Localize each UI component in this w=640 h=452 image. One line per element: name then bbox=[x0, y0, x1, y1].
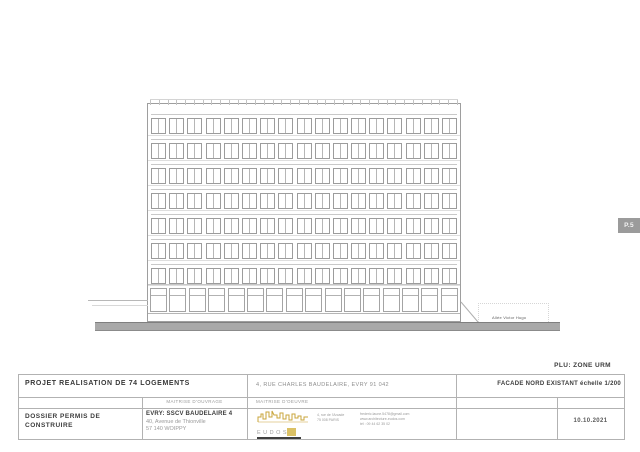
window-pane bbox=[359, 194, 365, 208]
window bbox=[206, 143, 221, 159]
window-pane bbox=[370, 194, 377, 208]
window-pane bbox=[341, 194, 347, 208]
window-pane bbox=[261, 169, 268, 183]
window-pane bbox=[298, 244, 305, 258]
window bbox=[206, 268, 221, 284]
window-pane bbox=[388, 169, 395, 183]
window bbox=[206, 193, 221, 209]
railing-tick bbox=[369, 100, 370, 105]
window-pane bbox=[243, 144, 250, 158]
railing-tick bbox=[290, 100, 291, 105]
window-pane bbox=[279, 169, 286, 183]
window-pane bbox=[298, 269, 305, 283]
window-pane bbox=[298, 119, 305, 133]
window-pane bbox=[407, 169, 414, 183]
window-pane bbox=[450, 269, 456, 283]
window-pane bbox=[388, 144, 395, 158]
railing-tick bbox=[229, 100, 230, 105]
window-pane bbox=[243, 219, 250, 233]
window bbox=[169, 168, 184, 184]
bay-transom bbox=[442, 289, 457, 296]
window bbox=[351, 118, 366, 134]
railing-tick bbox=[387, 100, 388, 105]
window bbox=[278, 268, 293, 284]
title-block-hline-1 bbox=[19, 397, 624, 398]
railing-tick bbox=[194, 100, 195, 105]
window-pane bbox=[443, 269, 450, 283]
window-pane bbox=[268, 244, 274, 258]
floor-row bbox=[151, 114, 457, 139]
window-pane bbox=[286, 119, 292, 133]
bay-transom bbox=[229, 289, 244, 296]
window bbox=[187, 143, 202, 159]
window-pane bbox=[268, 194, 274, 208]
window bbox=[369, 218, 384, 234]
maitrise-oeuvre-header: MAITRISE D'OEUVRE bbox=[256, 399, 308, 404]
window bbox=[278, 193, 293, 209]
slab-line bbox=[148, 260, 460, 261]
window bbox=[387, 268, 402, 284]
bay-transom bbox=[422, 289, 437, 296]
window bbox=[151, 143, 166, 159]
window-pane bbox=[214, 119, 220, 133]
railing-tick bbox=[395, 100, 396, 105]
title-block-vline-1 bbox=[247, 375, 248, 439]
window-pane bbox=[443, 194, 450, 208]
window bbox=[151, 243, 166, 259]
railing-tick bbox=[159, 100, 160, 105]
window bbox=[224, 268, 239, 284]
window-pane bbox=[323, 194, 329, 208]
window-pane bbox=[177, 119, 183, 133]
window-pane bbox=[352, 194, 359, 208]
window-pane bbox=[250, 219, 256, 233]
railing-tick bbox=[203, 100, 204, 105]
window bbox=[442, 268, 457, 284]
window-pane bbox=[177, 144, 183, 158]
window-pane bbox=[432, 194, 438, 208]
floor-row bbox=[151, 139, 457, 164]
ground-bay bbox=[305, 288, 322, 312]
window-pane bbox=[261, 269, 268, 283]
railing-tick bbox=[273, 100, 274, 105]
window bbox=[224, 168, 239, 184]
window-pane bbox=[243, 119, 250, 133]
architect-address: 4, rue de l'Arcade 75 008 PARIS bbox=[317, 413, 344, 423]
window-pane bbox=[407, 219, 414, 233]
ground-bay bbox=[363, 288, 380, 312]
window-pane bbox=[214, 244, 220, 258]
window-pane bbox=[334, 219, 341, 233]
window-pane bbox=[334, 144, 341, 158]
window bbox=[151, 218, 166, 234]
window-pane bbox=[188, 169, 195, 183]
bay-transom bbox=[306, 289, 321, 296]
window-pane bbox=[195, 219, 201, 233]
window-pane bbox=[341, 119, 347, 133]
window-pane bbox=[225, 169, 232, 183]
window bbox=[260, 243, 275, 259]
window-pane bbox=[195, 169, 201, 183]
window bbox=[424, 118, 439, 134]
window-pane bbox=[316, 144, 323, 158]
architect-logo: EUDOS bbox=[257, 409, 317, 439]
window-pane bbox=[268, 269, 274, 283]
window-pane bbox=[177, 169, 183, 183]
window bbox=[297, 243, 312, 259]
window-pane bbox=[177, 194, 183, 208]
window bbox=[187, 118, 202, 134]
ground-floor-base-line bbox=[148, 313, 460, 314]
left-fence-line bbox=[88, 300, 148, 301]
window bbox=[224, 118, 239, 134]
building-elevation bbox=[147, 103, 461, 322]
window bbox=[351, 268, 366, 284]
window bbox=[369, 168, 384, 184]
window bbox=[242, 218, 257, 234]
window bbox=[351, 218, 366, 234]
window-pane bbox=[188, 219, 195, 233]
railing-tick bbox=[404, 100, 405, 105]
window-pane bbox=[407, 194, 414, 208]
window bbox=[369, 243, 384, 259]
window-pane bbox=[250, 269, 256, 283]
window-pane bbox=[268, 119, 274, 133]
window bbox=[351, 243, 366, 259]
window-pane bbox=[305, 269, 311, 283]
window bbox=[406, 118, 421, 134]
bay-transom bbox=[364, 289, 379, 296]
roof-railing bbox=[150, 99, 458, 104]
document-type: DOSSIER PERMIS DE CONSTRUIRE bbox=[25, 412, 137, 430]
window bbox=[206, 168, 221, 184]
slab-line bbox=[148, 135, 460, 136]
slab-line bbox=[148, 210, 460, 211]
window bbox=[387, 193, 402, 209]
window-pane bbox=[395, 244, 401, 258]
ground-bay bbox=[325, 288, 342, 312]
window bbox=[187, 243, 202, 259]
bay-transom bbox=[384, 289, 399, 296]
window-pane bbox=[341, 144, 347, 158]
window bbox=[315, 268, 330, 284]
window bbox=[242, 243, 257, 259]
window bbox=[406, 168, 421, 184]
window-pane bbox=[232, 144, 238, 158]
window-pane bbox=[298, 219, 305, 233]
window-pane bbox=[432, 269, 438, 283]
railing-tick bbox=[413, 100, 414, 105]
window-pane bbox=[450, 244, 456, 258]
window-pane bbox=[414, 219, 420, 233]
window-pane bbox=[443, 144, 450, 158]
window-pane bbox=[250, 169, 256, 183]
window bbox=[278, 118, 293, 134]
window-pane bbox=[250, 119, 256, 133]
window-pane bbox=[298, 169, 305, 183]
window bbox=[406, 243, 421, 259]
window bbox=[278, 168, 293, 184]
window-pane bbox=[152, 194, 159, 208]
railing-tick bbox=[439, 100, 440, 105]
window-pane bbox=[432, 244, 438, 258]
window-pane bbox=[407, 119, 414, 133]
window bbox=[169, 193, 184, 209]
floor-row bbox=[151, 164, 457, 189]
sheet-title: FACADE NORD EXISTANT échelle 1/200 bbox=[497, 381, 621, 387]
window-pane bbox=[298, 194, 305, 208]
window-pane bbox=[170, 244, 177, 258]
window-pane bbox=[195, 194, 201, 208]
window-pane bbox=[323, 269, 329, 283]
window-pane bbox=[225, 144, 232, 158]
window-pane bbox=[195, 269, 201, 283]
window-pane bbox=[152, 219, 159, 233]
window-pane bbox=[425, 169, 432, 183]
window-pane bbox=[250, 144, 256, 158]
client-name: EVRY: SSCV BAUDELAIRE 4 bbox=[146, 411, 232, 417]
bay-transom bbox=[287, 289, 302, 296]
window-pane bbox=[443, 119, 450, 133]
window bbox=[406, 193, 421, 209]
window-pane bbox=[414, 269, 420, 283]
window-pane bbox=[170, 269, 177, 283]
window bbox=[187, 168, 202, 184]
window bbox=[169, 243, 184, 259]
window-pane bbox=[323, 119, 329, 133]
window-pane bbox=[207, 119, 214, 133]
window bbox=[297, 143, 312, 159]
railing-tick bbox=[246, 100, 247, 105]
window bbox=[333, 143, 348, 159]
ground-bay bbox=[228, 288, 245, 312]
window-pane bbox=[286, 244, 292, 258]
window-pane bbox=[352, 144, 359, 158]
window bbox=[206, 243, 221, 259]
window bbox=[260, 143, 275, 159]
window-pane bbox=[232, 269, 238, 283]
window bbox=[151, 118, 166, 134]
window-pane bbox=[279, 244, 286, 258]
window bbox=[387, 143, 402, 159]
window-pane bbox=[323, 144, 329, 158]
railing-tick bbox=[176, 100, 177, 105]
window bbox=[406, 268, 421, 284]
window-pane bbox=[243, 194, 250, 208]
window-pane bbox=[286, 194, 292, 208]
window bbox=[351, 143, 366, 159]
railing-tick bbox=[308, 100, 309, 105]
window-pane bbox=[352, 244, 359, 258]
window-pane bbox=[170, 194, 177, 208]
window-pane bbox=[395, 169, 401, 183]
window-pane bbox=[261, 194, 268, 208]
window-pane bbox=[377, 144, 383, 158]
window-pane bbox=[370, 269, 377, 283]
window-pane bbox=[152, 144, 159, 158]
window bbox=[315, 193, 330, 209]
project-title: PROJET REALISATION DE 74 LOGEMENTS bbox=[25, 380, 190, 387]
window-pane bbox=[225, 219, 232, 233]
window bbox=[242, 168, 257, 184]
window bbox=[424, 168, 439, 184]
window bbox=[278, 218, 293, 234]
window-pane bbox=[159, 169, 165, 183]
maitrise-ouvrage-header: MAITRISE D'OUVRAGE bbox=[142, 399, 247, 404]
slab-line bbox=[148, 285, 460, 286]
window-pane bbox=[177, 219, 183, 233]
issue-date: 10.10.2021 bbox=[557, 418, 624, 424]
window-pane bbox=[316, 169, 323, 183]
client-address-2: 57 140 WOIPPY bbox=[146, 426, 186, 432]
window bbox=[242, 193, 257, 209]
window-pane bbox=[305, 244, 311, 258]
window bbox=[260, 268, 275, 284]
window-pane bbox=[414, 244, 420, 258]
window-pane bbox=[425, 244, 432, 258]
railing-tick bbox=[334, 100, 335, 105]
window-pane bbox=[305, 169, 311, 183]
railing-tick bbox=[168, 100, 169, 105]
window-pane bbox=[334, 119, 341, 133]
window-pane bbox=[268, 219, 274, 233]
window-pane bbox=[341, 219, 347, 233]
window-pane bbox=[450, 169, 456, 183]
window-pane bbox=[207, 269, 214, 283]
window bbox=[424, 193, 439, 209]
window-pane bbox=[225, 194, 232, 208]
window-pane bbox=[352, 219, 359, 233]
railing-tick bbox=[299, 100, 300, 105]
window bbox=[315, 168, 330, 184]
window bbox=[442, 143, 457, 159]
window-pane bbox=[359, 144, 365, 158]
window bbox=[333, 193, 348, 209]
window-pane bbox=[388, 244, 395, 258]
window bbox=[369, 268, 384, 284]
left-fence-line-2 bbox=[92, 305, 148, 306]
window-pane bbox=[177, 244, 183, 258]
window-pane bbox=[316, 194, 323, 208]
ground-bay bbox=[344, 288, 361, 312]
window bbox=[333, 268, 348, 284]
window-pane bbox=[188, 119, 195, 133]
railing-tick bbox=[317, 100, 318, 105]
window-pane bbox=[232, 244, 238, 258]
window-pane bbox=[152, 244, 159, 258]
window bbox=[315, 218, 330, 234]
window-pane bbox=[207, 144, 214, 158]
window bbox=[224, 243, 239, 259]
window bbox=[224, 193, 239, 209]
window-pane bbox=[268, 169, 274, 183]
window bbox=[224, 143, 239, 159]
window-pane bbox=[395, 219, 401, 233]
window-pane bbox=[305, 219, 311, 233]
window-pane bbox=[414, 194, 420, 208]
railing-tick bbox=[325, 100, 326, 105]
window bbox=[333, 243, 348, 259]
railing-tick bbox=[431, 100, 432, 105]
window-pane bbox=[207, 244, 214, 258]
window bbox=[351, 168, 366, 184]
window bbox=[442, 193, 457, 209]
window-pane bbox=[232, 169, 238, 183]
window-pane bbox=[388, 119, 395, 133]
window bbox=[297, 268, 312, 284]
window-pane bbox=[261, 119, 268, 133]
window-pane bbox=[232, 219, 238, 233]
window-pane bbox=[425, 144, 432, 158]
bay-transom bbox=[170, 289, 185, 296]
window-pane bbox=[450, 144, 456, 158]
window bbox=[442, 118, 457, 134]
window-pane bbox=[450, 219, 456, 233]
window bbox=[387, 168, 402, 184]
window bbox=[315, 143, 330, 159]
window-pane bbox=[170, 144, 177, 158]
window-pane bbox=[279, 119, 286, 133]
window-pane bbox=[341, 244, 347, 258]
window-pane bbox=[159, 119, 165, 133]
window-pane bbox=[370, 244, 377, 258]
ground-bay bbox=[169, 288, 186, 312]
window-pane bbox=[407, 269, 414, 283]
window-pane bbox=[188, 244, 195, 258]
window-pane bbox=[352, 269, 359, 283]
window-pane bbox=[268, 144, 274, 158]
window bbox=[187, 218, 202, 234]
window-pane bbox=[359, 219, 365, 233]
window-pane bbox=[170, 119, 177, 133]
window-pane bbox=[279, 269, 286, 283]
title-block-hline-2 bbox=[19, 408, 624, 409]
window bbox=[333, 218, 348, 234]
window-pane bbox=[414, 169, 420, 183]
ground-bay bbox=[189, 288, 206, 312]
window-pane bbox=[359, 244, 365, 258]
window-pane bbox=[359, 169, 365, 183]
floor-row bbox=[151, 264, 457, 289]
window bbox=[387, 243, 402, 259]
railing-tick bbox=[264, 100, 265, 105]
window-pane bbox=[323, 169, 329, 183]
window bbox=[387, 218, 402, 234]
window-pane bbox=[261, 244, 268, 258]
window bbox=[260, 168, 275, 184]
railing-tick bbox=[211, 100, 212, 105]
window bbox=[442, 168, 457, 184]
window-pane bbox=[305, 119, 311, 133]
window-pane bbox=[214, 144, 220, 158]
page-tab[interactable]: P.5 bbox=[618, 218, 640, 233]
window-pane bbox=[432, 119, 438, 133]
window-pane bbox=[395, 119, 401, 133]
window-pane bbox=[425, 119, 432, 133]
window-pane bbox=[195, 144, 201, 158]
window-pane bbox=[352, 119, 359, 133]
window bbox=[297, 118, 312, 134]
title-block: PROJET REALISATION DE 74 LOGEMENTS 4, RU… bbox=[18, 374, 625, 440]
window bbox=[406, 218, 421, 234]
window-pane bbox=[377, 169, 383, 183]
window-pane bbox=[159, 144, 165, 158]
client-address-1: 40, Avenue de Thionville bbox=[146, 419, 206, 425]
window-pane bbox=[207, 219, 214, 233]
architect-address-line2: 75 008 PARIS bbox=[317, 418, 344, 423]
window-pane bbox=[243, 169, 250, 183]
window-pane bbox=[159, 219, 165, 233]
